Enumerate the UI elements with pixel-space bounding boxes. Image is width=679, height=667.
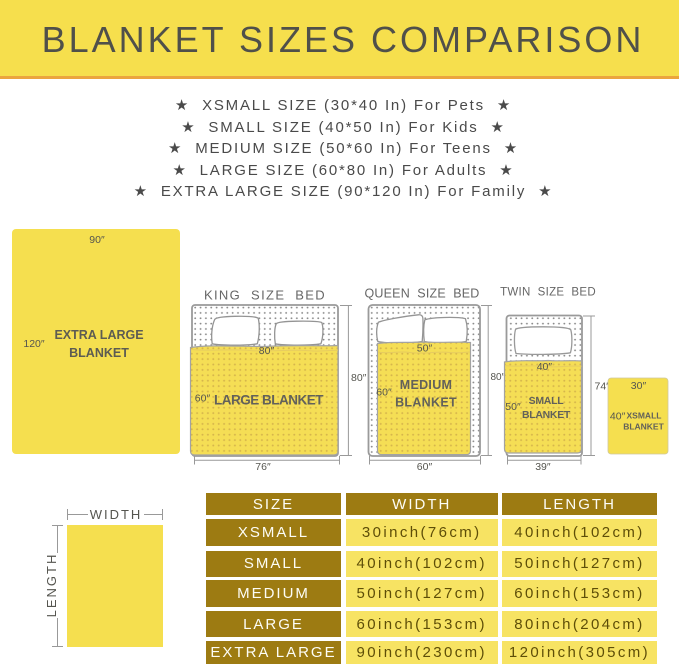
svg-text:90″: 90″ (89, 234, 105, 246)
svg-text:BLANKET: BLANKET (522, 409, 571, 421)
svg-text:80″: 80″ (351, 372, 367, 384)
svg-text:80″: 80″ (491, 372, 506, 383)
svg-text:76″: 76″ (255, 461, 271, 473)
svg-text:BLANKET: BLANKET (69, 346, 129, 360)
svg-text:TWIN SIZE BED: TWIN SIZE BED (500, 287, 596, 299)
svg-text:80″: 80″ (259, 345, 275, 357)
svg-text:60″: 60″ (376, 387, 392, 399)
svg-text:BLANKET: BLANKET (395, 396, 457, 410)
svg-text:30″: 30″ (631, 380, 647, 392)
svg-text:EXTRA LARGE: EXTRA LARGE (54, 328, 143, 342)
svg-text:BLANKET: BLANKET (623, 422, 664, 432)
svg-text:XSMALL: XSMALL (627, 411, 662, 421)
svg-text:KING SIZE BED: KING SIZE BED (204, 287, 326, 302)
svg-text:50″: 50″ (417, 343, 433, 355)
svg-text:LARGE BLANKET: LARGE BLANKET (214, 393, 324, 408)
svg-text:60″: 60″ (195, 393, 211, 405)
svg-text:SMALL: SMALL (529, 395, 565, 407)
svg-text:40″: 40″ (537, 361, 553, 373)
svg-text:LENGTH: LENGTH (44, 553, 59, 618)
svg-text:39″: 39″ (535, 461, 551, 473)
svg-text:WIDTH: WIDTH (90, 507, 143, 522)
svg-text:120″: 120″ (23, 338, 45, 350)
svg-text:MEDIUM: MEDIUM (400, 378, 453, 392)
svg-text:50″: 50″ (505, 401, 521, 413)
svg-text:60″: 60″ (417, 461, 433, 473)
svg-text:QUEEN SIZE BED: QUEEN SIZE BED (364, 287, 479, 301)
